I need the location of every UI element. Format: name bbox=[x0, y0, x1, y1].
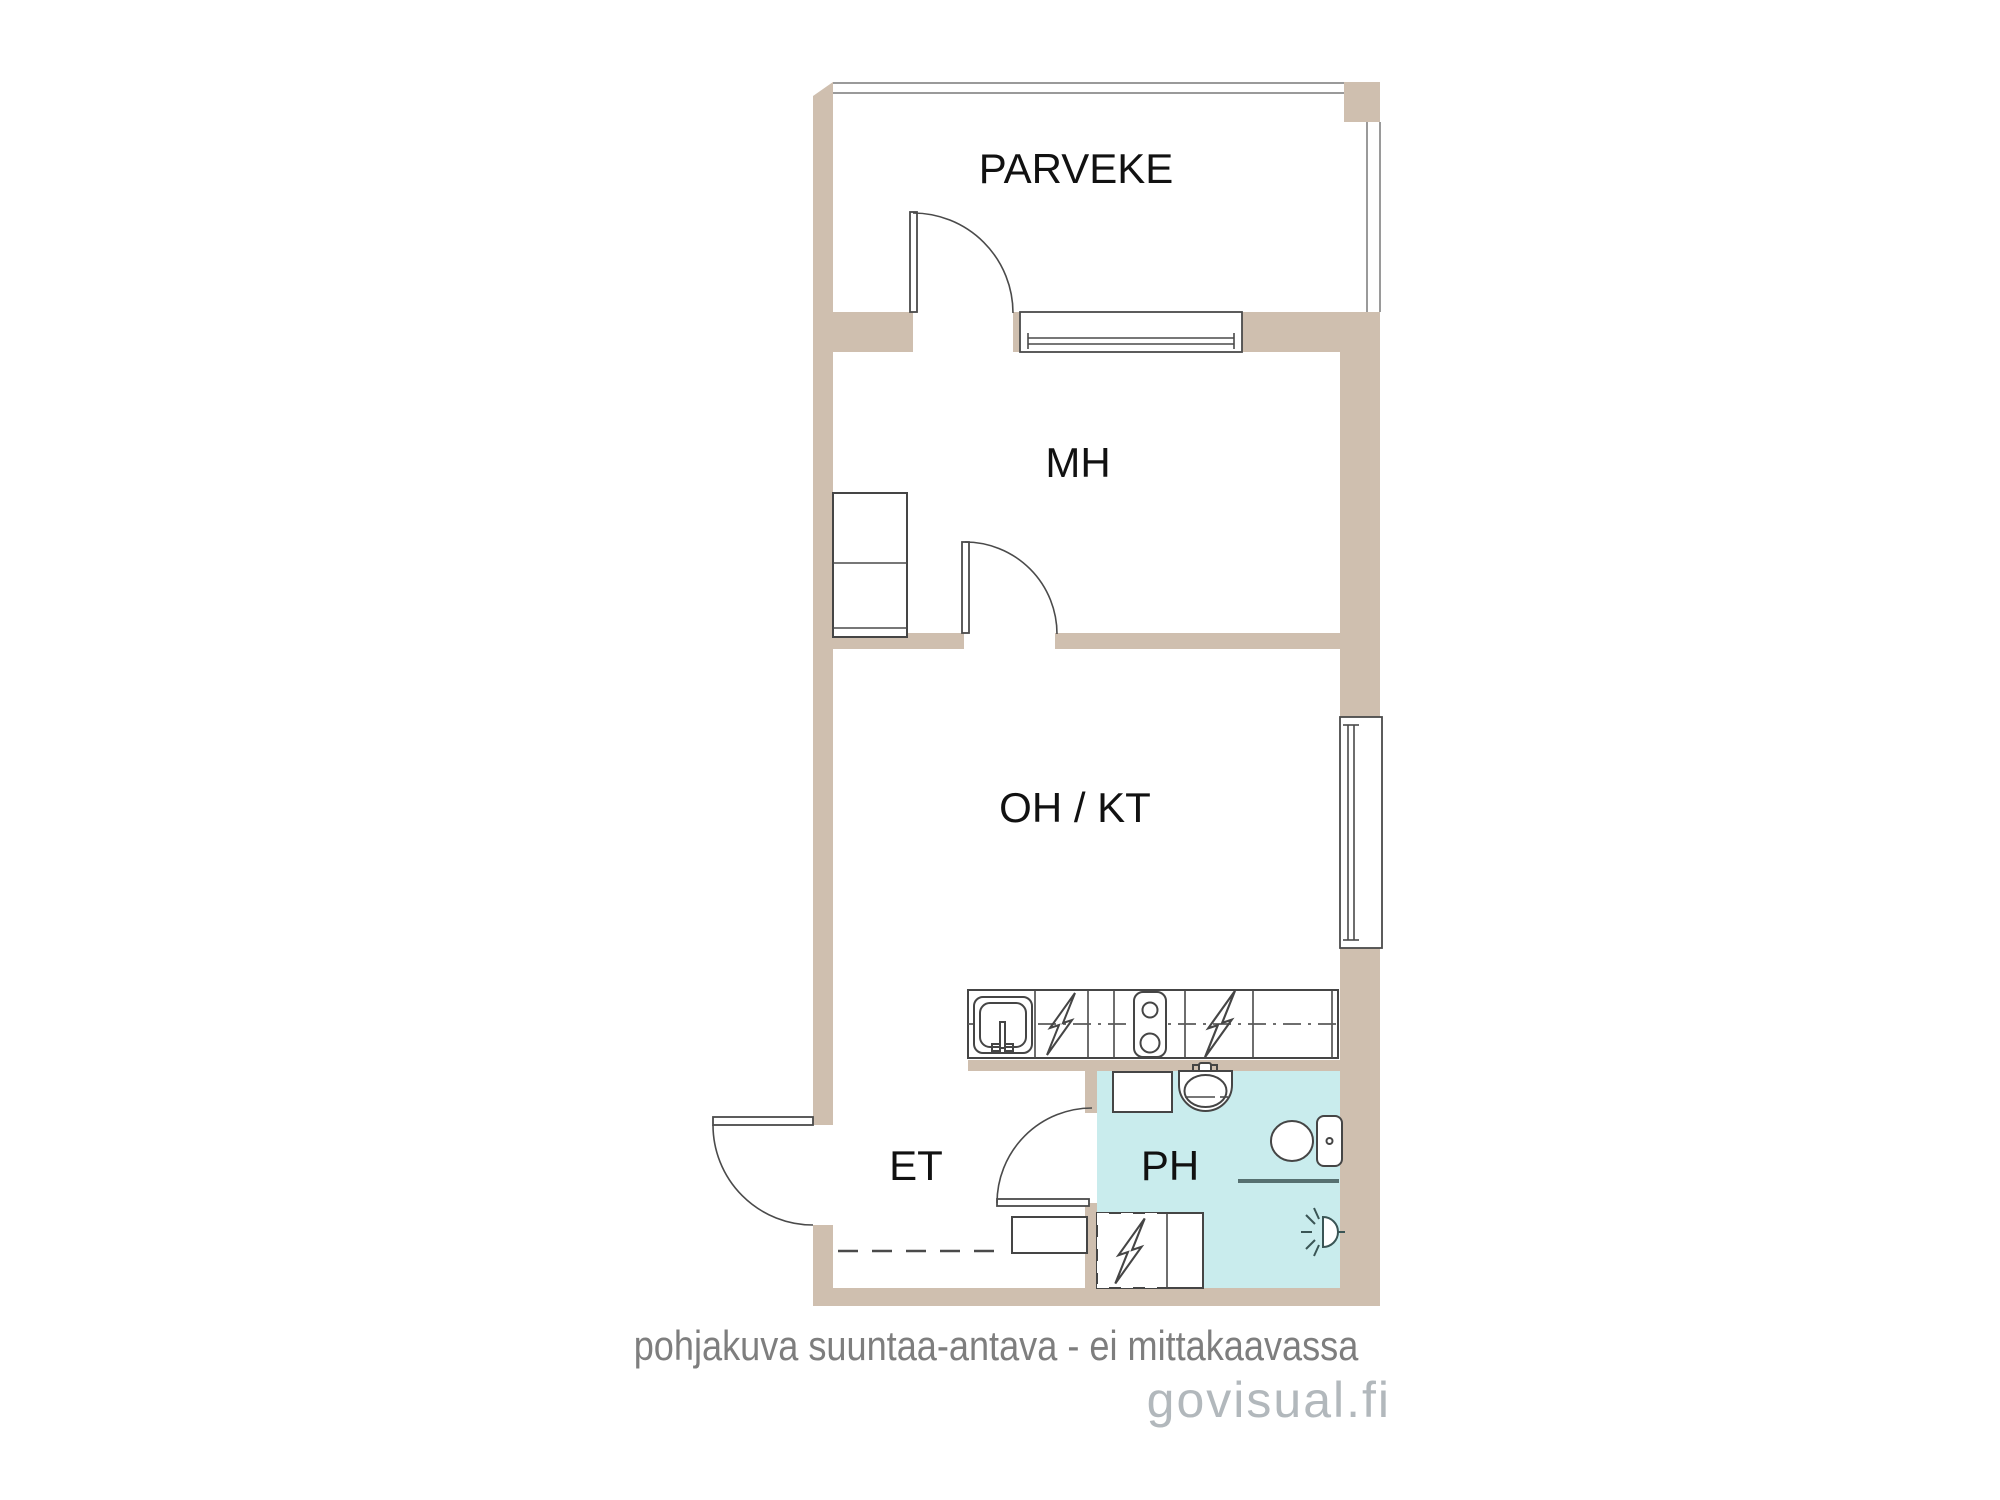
floorplan-drawing: PARVEKE MH OH / KT ET PH pohjakuva suunt… bbox=[0, 0, 2000, 1500]
balcony-bedroom-wall-right bbox=[1242, 312, 1380, 352]
washbasin-icon bbox=[1179, 1063, 1232, 1111]
left-exterior-wall-lower bbox=[813, 1225, 833, 1306]
right-exterior-wall-lower bbox=[1340, 948, 1380, 1306]
stove-burners-icon bbox=[1134, 992, 1166, 1057]
living-kitchen-label: OH / KT bbox=[999, 784, 1151, 831]
floorplan-page: PARVEKE MH OH / KT ET PH pohjakuva suunt… bbox=[0, 0, 2000, 1500]
kitchen-bathroom-wall bbox=[968, 1060, 1340, 1071]
disclaimer-text: pohjakuva suuntaa-antava - ei mittakaava… bbox=[634, 1324, 1359, 1370]
kitchen-sink-icon bbox=[974, 997, 1032, 1053]
hall-label: ET bbox=[889, 1142, 943, 1189]
hall-cabinet bbox=[1012, 1217, 1087, 1253]
left-exterior-wall bbox=[813, 82, 833, 1125]
kitchen-counter bbox=[968, 990, 1338, 1058]
balcony-label: PARVEKE bbox=[979, 145, 1174, 192]
bottom-exterior-wall bbox=[833, 1288, 1380, 1306]
balcony-bedroom-wall-mid bbox=[1013, 312, 1020, 352]
bathroom-label: PH bbox=[1141, 1142, 1199, 1189]
balcony-corner-pillar bbox=[1344, 82, 1380, 122]
wardrobe bbox=[833, 493, 907, 637]
footer: pohjakuva suuntaa-antava - ei mittakaava… bbox=[634, 1324, 1391, 1428]
entrance-door bbox=[713, 1117, 813, 1225]
bedroom-window bbox=[1020, 312, 1242, 352]
right-exterior-wall-upper bbox=[1340, 352, 1380, 717]
hall-bathroom-wall-upper bbox=[1085, 1071, 1097, 1113]
living-room-window bbox=[1340, 717, 1382, 948]
balcony-bedroom-wall-left bbox=[833, 312, 913, 352]
bedroom-living-wall-right bbox=[1055, 633, 1340, 649]
watermark-text: govisual.fi bbox=[1147, 1372, 1391, 1428]
bedroom-label: MH bbox=[1045, 439, 1110, 486]
bathroom-cabinet bbox=[1113, 1072, 1172, 1112]
washing-machine-icon bbox=[1097, 1213, 1203, 1288]
